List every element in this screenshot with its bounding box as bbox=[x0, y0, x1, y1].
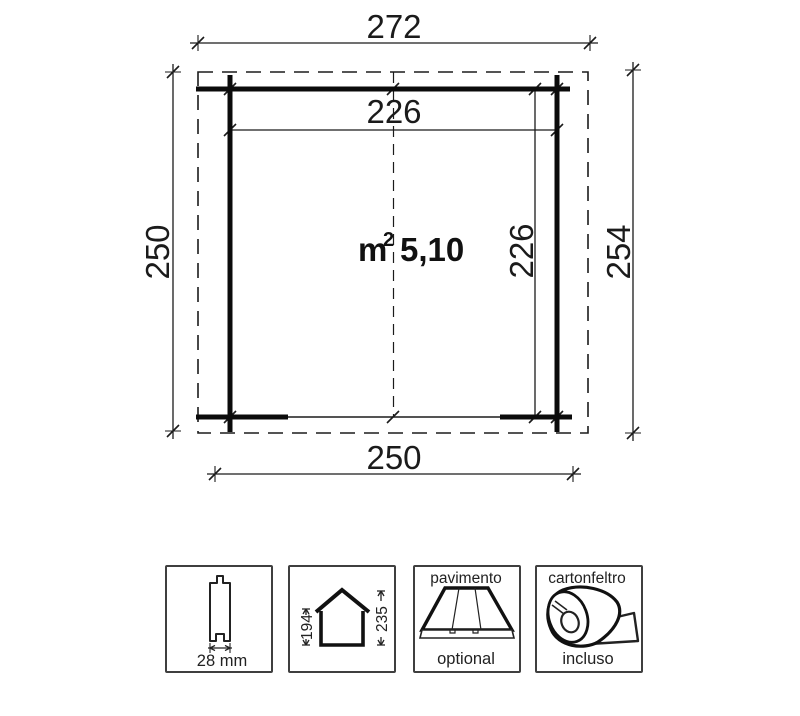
legend-box-floor: pavimento optional bbox=[413, 565, 521, 673]
floor-status: optional bbox=[437, 650, 495, 668]
felt-status: incluso bbox=[562, 650, 613, 668]
house-ridge-height: 235 bbox=[374, 606, 391, 632]
floor-boards-icon bbox=[420, 588, 514, 638]
felt-roll-icon bbox=[541, 586, 638, 648]
legend-box-house: 194 235 bbox=[288, 565, 396, 673]
dim-left-height: 250 bbox=[139, 224, 176, 279]
felt-title: cartonfeltro bbox=[548, 570, 626, 587]
area-value: 5,10 bbox=[400, 231, 464, 268]
house-gable-icon bbox=[316, 590, 369, 645]
dim-bottom-width: 250 bbox=[366, 439, 421, 476]
floor-plan: 272 226 250 250 254 226 m 2 5,10 bbox=[0, 0, 800, 540]
dim-inner-height: 226 bbox=[503, 223, 540, 278]
floor-title: pavimento bbox=[430, 570, 502, 587]
dim-inner-width: 226 bbox=[366, 93, 421, 130]
area-label: m 2 5,10 bbox=[358, 229, 464, 268]
cabin-technical-drawing: 272 226 250 250 254 226 m 2 5,10 28 mm bbox=[0, 0, 800, 716]
legend-box-plank: 28 mm bbox=[165, 565, 273, 673]
dim-roof-width: 272 bbox=[366, 8, 421, 45]
house-wall-height: 194 bbox=[299, 614, 316, 640]
plank-profile-icon bbox=[208, 576, 232, 653]
legend-box-felt: cartonfeltro incluso bbox=[535, 565, 643, 673]
dim-right-height: 254 bbox=[600, 224, 637, 279]
plank-thickness-label: 28 mm bbox=[197, 652, 247, 670]
area-superscript: 2 bbox=[383, 229, 394, 251]
